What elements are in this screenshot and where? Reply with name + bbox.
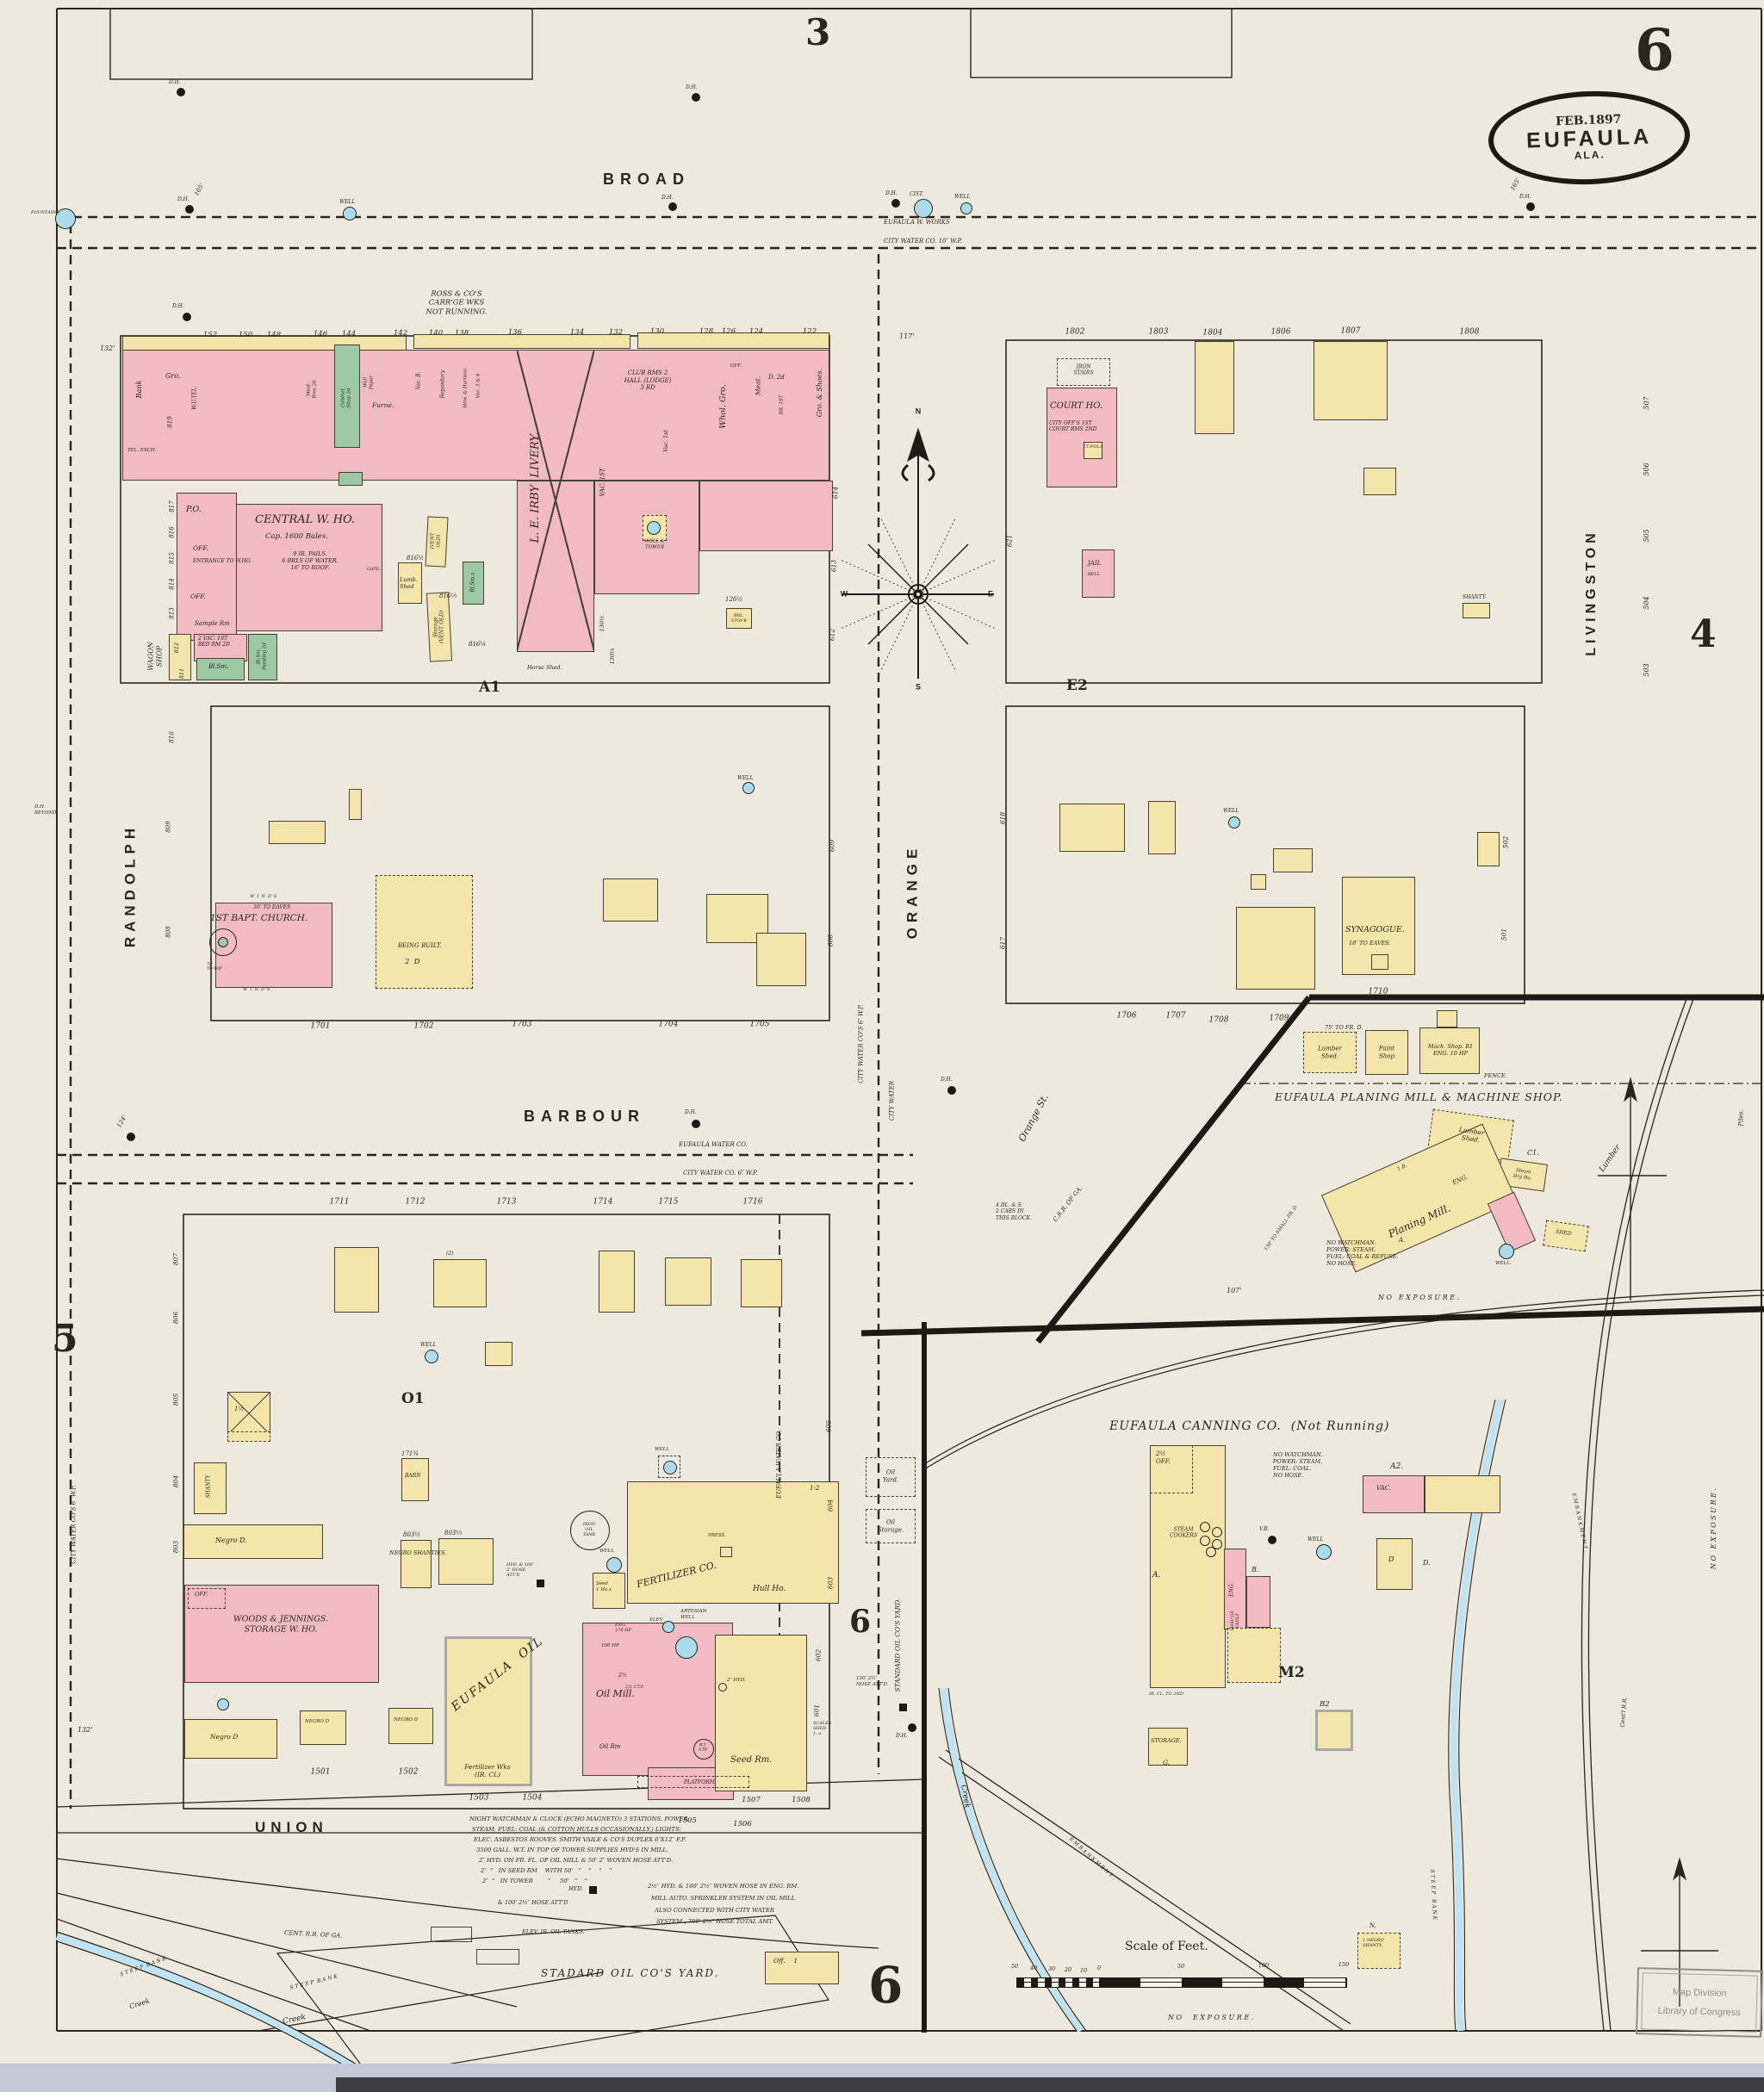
map-label: 617 bbox=[998, 937, 1006, 949]
map-label: Sample Rm bbox=[195, 620, 230, 628]
map-label: Horse Shed. bbox=[527, 665, 562, 672]
map-label: 126½ bbox=[725, 596, 742, 604]
building bbox=[1371, 954, 1388, 970]
map-label: 130½ bbox=[599, 616, 606, 632]
map-label: 2″ " IN SEED RM WITH 50' " " " " bbox=[481, 1867, 612, 1874]
map-label: 812 bbox=[174, 642, 181, 653]
map-label: NIGHT WATCHMAN & CLOCK (ECHO MAGNETO) 3 … bbox=[469, 1816, 690, 1822]
map-label: 134 bbox=[570, 328, 584, 337]
map-label: GATE. bbox=[367, 567, 381, 572]
map-label: Gro. bbox=[165, 372, 180, 381]
map-label: 613 bbox=[829, 560, 837, 572]
map-label: Meat. bbox=[754, 376, 761, 395]
well-icon bbox=[914, 199, 933, 218]
map-label: Off. 1 bbox=[773, 1957, 798, 1965]
map-label: D. 2d bbox=[768, 374, 785, 382]
map-label: 803⅓ bbox=[444, 1530, 462, 1537]
map-label: 819 bbox=[167, 416, 175, 427]
badge-state: ALA. bbox=[1575, 150, 1606, 162]
building bbox=[388, 1708, 433, 1744]
map-label: SYSTEM , 700' 2½″ HOSE TOTAL AMT. bbox=[656, 1918, 773, 1925]
map-label: WOODS & JENNINGS. STORAGE W. HO. bbox=[233, 1614, 328, 1634]
map-label: (2) bbox=[446, 1251, 454, 1257]
map-label: STADARD OIL CO'S YARD. bbox=[541, 1967, 719, 1980]
map-label: 1506 bbox=[733, 1820, 752, 1828]
map-label: 18' TO EAVES. bbox=[1349, 940, 1391, 947]
map-label: ENG. bbox=[1228, 1583, 1234, 1597]
map-label: 78' TO TOP bbox=[207, 963, 222, 972]
map-label: D.H. bbox=[686, 84, 698, 90]
map-label: Vac. B. bbox=[415, 372, 421, 390]
tank-ring-icon bbox=[1206, 1547, 1216, 1557]
well-icon bbox=[343, 207, 357, 220]
map-label: 1710 bbox=[1369, 988, 1388, 997]
map-label: D.H. bbox=[896, 1733, 908, 1739]
map-label: 1711 bbox=[330, 1198, 350, 1207]
well-icon bbox=[663, 1461, 677, 1474]
map-label: D.H. bbox=[685, 1109, 697, 1115]
map-label: 1ST BAPT. CHURCH. bbox=[210, 913, 307, 924]
well-icon bbox=[606, 1557, 622, 1573]
map-label: 816½ bbox=[407, 555, 424, 562]
map-label: 1707 bbox=[1166, 1012, 1186, 1021]
tank-ring-icon bbox=[1200, 1522, 1210, 1532]
hydrant-square-icon bbox=[589, 1886, 597, 1894]
map-label: Negro D. bbox=[215, 1536, 247, 1545]
hydrant-icon bbox=[692, 1120, 700, 1128]
map-label: EUFAULA PLANING MILL & MACHINE SHOP. bbox=[1275, 1090, 1563, 1103]
map-label: Bl.Sm. bbox=[208, 663, 228, 671]
map-label: EUFAULA W. WORKS bbox=[884, 219, 950, 227]
map-label: 603 bbox=[826, 1577, 834, 1589]
map-label: 612 bbox=[828, 629, 835, 641]
map-label: Piles. bbox=[1738, 1109, 1746, 1126]
building bbox=[1227, 1628, 1281, 1683]
map-label: Oil Yard. bbox=[883, 1468, 898, 1483]
scale-bar-fine bbox=[1016, 1977, 1101, 1988]
map-label: 614 bbox=[831, 487, 839, 499]
map-label: SHAV'GS VAULT bbox=[1230, 1611, 1240, 1631]
map-label: 605 bbox=[824, 1420, 832, 1432]
map-label: 2″ HYD. ON FR. FL. OF OIL MILL & 50' 2″ … bbox=[479, 1857, 673, 1864]
map-label: Hdw. & Harness. bbox=[463, 367, 469, 407]
map-label: 144 bbox=[342, 330, 356, 338]
map-label: SYNAGOGUE. bbox=[1345, 925, 1405, 935]
map-label: 811 bbox=[179, 668, 186, 679]
well-icon bbox=[425, 1350, 438, 1363]
map-label: Cap. 1600 Bales. bbox=[265, 532, 328, 541]
map-label: & 100' 2½″ HOSE ATT'D bbox=[498, 1900, 568, 1907]
map-label: N. bbox=[1370, 1922, 1376, 1930]
map-label: B2 bbox=[1320, 1700, 1330, 1709]
tank-ring-icon bbox=[1212, 1527, 1222, 1537]
map-label: 50 bbox=[1011, 1964, 1018, 1971]
map-label: 609 bbox=[828, 840, 835, 852]
building bbox=[431, 1927, 472, 1942]
map-label: W I N D 'S bbox=[243, 987, 270, 992]
building bbox=[1246, 1576, 1270, 1628]
map-label: 1803 bbox=[1149, 328, 1169, 338]
building bbox=[1363, 1475, 1425, 1513]
map-label: 506 bbox=[1643, 462, 1651, 475]
map-label: D.H. bbox=[172, 303, 184, 309]
map-label: STEAM. FUEL: COAL (& COTTON HULLS OCCASI… bbox=[472, 1826, 681, 1833]
building bbox=[485, 1342, 512, 1366]
map-label: 0 bbox=[1097, 1965, 1101, 1972]
map-label: D. bbox=[1423, 1559, 1431, 1567]
building bbox=[376, 875, 473, 989]
map-label: 152 bbox=[203, 331, 217, 339]
building bbox=[1148, 801, 1176, 854]
map-label: 1713 bbox=[497, 1198, 517, 1207]
map-label: L. E. IRBY LIVERY, bbox=[529, 432, 543, 543]
map-label: NEGRO D bbox=[305, 1719, 329, 1725]
scan-edge-shadow bbox=[336, 2077, 1764, 2092]
tank-ring-icon bbox=[570, 1511, 610, 1550]
map-label: V.B. bbox=[1259, 1526, 1270, 1532]
map-label: BEING BUILT. bbox=[398, 942, 442, 950]
map-label: 815 bbox=[169, 552, 177, 563]
map-label: Wall Paper bbox=[363, 376, 374, 389]
map-label: ELEV. bbox=[649, 1617, 663, 1623]
map-label: 504 bbox=[1643, 596, 1651, 609]
building bbox=[433, 1259, 487, 1307]
map-label: Meat. Rms 2d bbox=[306, 381, 317, 399]
building bbox=[720, 1547, 732, 1557]
map-label: NO WATCHMAN. POWER: STEAM. FUEL: COAL & … bbox=[1326, 1240, 1398, 1268]
map-label: SHANTY bbox=[205, 1475, 211, 1499]
building bbox=[756, 933, 806, 986]
tank-ring-icon bbox=[209, 928, 237, 956]
map-label: 117' bbox=[899, 332, 914, 341]
map-label: IR. CL. TO 2ND bbox=[1149, 1692, 1183, 1697]
map-label: CITY WATER CO. 6″ W.P. bbox=[683, 1170, 758, 1177]
map-label: 1708 bbox=[1209, 1016, 1229, 1026]
map-label: 809 bbox=[165, 821, 173, 832]
building bbox=[401, 1458, 429, 1501]
map-label: ENTRANCE TO W.HO. bbox=[193, 558, 252, 564]
map-label: N bbox=[916, 407, 922, 417]
map-label: 1 NEGRO SHANTY. bbox=[1363, 1938, 1384, 1948]
map-label: JAIL bbox=[1088, 560, 1101, 568]
map-label: CUPOLA bbox=[1084, 444, 1102, 450]
map-label: 816⅓ bbox=[439, 593, 457, 600]
map-label: D.H. bbox=[661, 195, 674, 201]
map-label: LIVINGSTON bbox=[1583, 529, 1600, 656]
map-label: ELEV. IR. OIL TANKS. bbox=[522, 1929, 585, 1936]
map-label: 132 bbox=[609, 328, 623, 337]
well-icon bbox=[675, 1636, 698, 1659]
scale-bar-coarse bbox=[1099, 1977, 1347, 1988]
map-label: 502 bbox=[1501, 836, 1509, 848]
map-label: UNION bbox=[255, 1819, 328, 1837]
building bbox=[1251, 874, 1266, 890]
map-label: EUFAULA WATER CO. bbox=[679, 1141, 748, 1149]
map-label: 814 bbox=[169, 578, 177, 589]
map-label: 1806 bbox=[1271, 328, 1291, 338]
building bbox=[1463, 603, 1490, 618]
map-label: 146 bbox=[314, 330, 327, 338]
map-label: Oil Storage. bbox=[878, 1518, 904, 1533]
map-label: 1504 bbox=[523, 1794, 543, 1803]
map-label: CITY OFF'S 1ST COURT RMS 2ND bbox=[1049, 420, 1096, 433]
map-label: BELL bbox=[1088, 572, 1100, 577]
map-label: 604 bbox=[826, 1499, 834, 1512]
map-label: 132' bbox=[100, 345, 115, 353]
map-label: Cabinet Shop 2d bbox=[340, 388, 351, 408]
map-label: D.H. bbox=[1519, 194, 1531, 200]
map-label: S bbox=[916, 683, 921, 692]
building bbox=[741, 1259, 782, 1307]
map-label: Seed Rm. bbox=[730, 1755, 772, 1766]
well-icon bbox=[960, 202, 972, 214]
map-label: Lumb. Shed bbox=[400, 577, 418, 591]
building bbox=[599, 1251, 635, 1313]
map-label: 503 bbox=[1643, 663, 1651, 676]
map-label: B. bbox=[1252, 1566, 1258, 1574]
map-label: 138 bbox=[455, 329, 469, 338]
map-label: 4 DL. & S. 2 CABS IN THIS BLOCK. bbox=[996, 1202, 1032, 1221]
map-label: W I N D 'S bbox=[250, 894, 276, 899]
map-label: 20 bbox=[1065, 1967, 1071, 1974]
map-label: 810 bbox=[169, 731, 177, 742]
map-label: 142 bbox=[394, 329, 407, 338]
map-label: ORANGE bbox=[904, 844, 922, 940]
map-label: 1½ bbox=[234, 1406, 244, 1413]
map-label: 1501 bbox=[311, 1768, 331, 1778]
map-label: 601 bbox=[812, 1704, 820, 1716]
map-label: 5 bbox=[52, 1316, 78, 1363]
map-label: 150 bbox=[239, 331, 252, 339]
map-label: BR. 1ST bbox=[780, 395, 786, 415]
building bbox=[1059, 804, 1125, 852]
badge-city: EUFAULA bbox=[1526, 125, 1653, 152]
building bbox=[334, 1247, 379, 1313]
hydrant-icon bbox=[1268, 1536, 1276, 1544]
map-label: 1703 bbox=[512, 1021, 532, 1030]
map-label: 507 bbox=[1643, 396, 1651, 409]
map-label: CITY WATER CO'S 6″ W.P. bbox=[858, 1004, 866, 1083]
map-label: OFF. bbox=[195, 1592, 208, 1598]
map-label: FOUNTAIN bbox=[31, 210, 56, 215]
map-label: 602 bbox=[814, 1649, 822, 1661]
map-label: 1716 bbox=[743, 1198, 763, 1207]
map-label: CLUB RMS 2 HALL (LODGE) 3 RD bbox=[624, 369, 672, 392]
map-label: 803½ bbox=[403, 1531, 420, 1539]
well-icon bbox=[55, 208, 76, 229]
map-label: MILL AUTO. SPRINKLER SYSTEM IN OIL MILL bbox=[651, 1895, 795, 1902]
map-label: OFF. bbox=[730, 363, 742, 369]
map-label: D bbox=[1388, 1555, 1394, 1564]
map-label: N O E X P O S U R E . bbox=[1378, 1294, 1459, 1302]
map-label: 75' TO FR. D. bbox=[1325, 1025, 1363, 1032]
map-label: 2½ OFF. bbox=[1156, 1450, 1171, 1465]
well-icon bbox=[1316, 1544, 1332, 1560]
building bbox=[183, 1524, 323, 1559]
map-label: G. bbox=[1163, 1759, 1170, 1766]
map-label: 2 VAC. 1ST BED RM 2D bbox=[198, 636, 230, 649]
map-label: C1. bbox=[1527, 1149, 1539, 1158]
map-label: RANDOLPH bbox=[122, 823, 140, 947]
building bbox=[227, 1392, 270, 1435]
map-label: 806 bbox=[171, 1312, 179, 1324]
map-label: A. bbox=[1152, 1571, 1160, 1580]
map-label: D.H. BEYOND bbox=[34, 804, 56, 816]
map-label: 621 bbox=[1005, 535, 1013, 547]
hydrant-icon bbox=[127, 1133, 135, 1141]
map-label: 130 bbox=[650, 327, 664, 336]
map-label: D.H. bbox=[885, 190, 898, 196]
map-label: 30 bbox=[1048, 1966, 1055, 1973]
building bbox=[1437, 1010, 1457, 1027]
map-label: 6 bbox=[1635, 16, 1674, 85]
map-label: 128 bbox=[699, 327, 713, 336]
sanborn-map-sheet: 634566BROADBARBOURUNIONRANDOLPHORANGELIV… bbox=[0, 0, 1764, 2092]
map-label: TEL. EXCH. bbox=[127, 448, 156, 454]
well-icon bbox=[1228, 816, 1240, 829]
map-label: ROSS & CO'S CARR'GE WKS NOT RUNNING. bbox=[425, 289, 487, 316]
building bbox=[1425, 1475, 1500, 1513]
map-label: WELL. bbox=[1495, 1261, 1512, 1267]
map-label: 50 bbox=[1177, 1964, 1184, 1971]
map-label: 816 bbox=[169, 526, 177, 537]
map-label: SHANTY. bbox=[1463, 594, 1487, 600]
map-linework bbox=[0, 0, 1764, 2092]
map-label: STANDARD OIL CO'S YARD. bbox=[893, 1598, 901, 1692]
map-label: E2 bbox=[1066, 677, 1088, 695]
map-label: WELL bbox=[339, 199, 356, 205]
tank-ring-icon bbox=[1200, 1536, 1210, 1546]
map-label: 608 bbox=[826, 934, 834, 947]
map-label: 1-2 bbox=[810, 1485, 819, 1493]
map-label: 816¼ bbox=[469, 641, 486, 649]
building bbox=[269, 821, 326, 844]
scale-title: Scale of Feet. bbox=[1125, 1940, 1208, 1954]
map-label: 2½ bbox=[618, 1673, 627, 1679]
map-label: D.H. bbox=[169, 79, 181, 85]
map-label: BARN bbox=[405, 1473, 421, 1479]
hydrant-icon bbox=[947, 1086, 956, 1095]
map-label: Paint Shop bbox=[1379, 1045, 1394, 1059]
map-label: 40 bbox=[1030, 1965, 1037, 1972]
map-label: Steam Dry Ho. bbox=[1512, 1168, 1532, 1182]
map-label: 1704 bbox=[659, 1021, 679, 1030]
building bbox=[401, 1540, 432, 1588]
building bbox=[665, 1257, 711, 1306]
map-label: BROAD bbox=[603, 171, 690, 189]
map-label: 150' 2½″ HOSE ATT'D bbox=[856, 1676, 887, 1687]
map-label: NEGRO D bbox=[394, 1717, 418, 1723]
map-label: 2½″ HYD. & 100' 2½″ WOVEN HOSE IN ENG. R… bbox=[648, 1883, 799, 1890]
map-label: 1712 bbox=[406, 1198, 425, 1207]
map-label: NO WATCHMAN. POWER: STEAM. FUEL: COAL. N… bbox=[1273, 1452, 1322, 1480]
map-label: 100 HP bbox=[601, 1643, 619, 1649]
map-label: 1701 bbox=[311, 1022, 331, 1032]
map-label: 10 bbox=[1080, 1968, 1087, 1975]
tower-dot bbox=[218, 937, 228, 947]
map-label: 140 bbox=[429, 329, 443, 338]
building bbox=[1363, 468, 1396, 495]
map-label: A2. bbox=[1390, 1462, 1403, 1472]
map-label: 107' bbox=[1227, 1287, 1241, 1295]
map-label: OFF. bbox=[193, 544, 208, 552]
map-label: WELL bbox=[420, 1342, 437, 1348]
building bbox=[300, 1710, 346, 1745]
map-label: A1 bbox=[479, 679, 500, 697]
well-icon bbox=[1499, 1244, 1514, 1259]
well-icon bbox=[662, 1621, 674, 1633]
map-label: WELL bbox=[599, 1549, 614, 1555]
map-label: 805 bbox=[171, 1394, 179, 1406]
map-label: Mach. Shop. B1 ENG. 10 HP bbox=[1428, 1044, 1473, 1058]
map-label: 1705 bbox=[750, 1021, 770, 1030]
map-label: Bl.Sm. Painting 2d bbox=[256, 642, 267, 670]
map-label: ENG. 176 HP bbox=[615, 1623, 631, 1633]
well-icon bbox=[647, 521, 661, 535]
map-label: WELL bbox=[655, 1447, 669, 1453]
building bbox=[715, 1635, 807, 1791]
map-label: 1804 bbox=[1203, 329, 1223, 338]
map-label: 150 bbox=[1339, 1962, 1349, 1969]
map-label: 2 D bbox=[405, 958, 420, 966]
building bbox=[349, 789, 362, 820]
building bbox=[1315, 1710, 1353, 1751]
map-label: 1503 bbox=[469, 1794, 489, 1803]
map-label: Gro. & Shoes. bbox=[816, 369, 824, 417]
map-label: NEGRO SHANTIES. bbox=[389, 1550, 446, 1557]
map-label: PRESS. bbox=[708, 1533, 726, 1539]
map-label: 2″ HYD. bbox=[727, 1678, 746, 1684]
building bbox=[699, 481, 833, 551]
hydrant-icon bbox=[668, 202, 677, 211]
map-label: E bbox=[988, 590, 993, 599]
map-label: Hull Ho. bbox=[753, 1585, 786, 1594]
map-label: WELL & TOWER bbox=[644, 538, 665, 549]
hydrant-icon bbox=[891, 199, 900, 208]
library-of-congress-stamp: Map Division Library of Congress bbox=[1636, 1967, 1763, 2038]
map-label: 124 bbox=[749, 327, 763, 336]
map-label: 1709 bbox=[1270, 1015, 1289, 1024]
map-label: W bbox=[841, 590, 848, 599]
map-label: 817 bbox=[169, 500, 177, 512]
map-label: EUFAULA CANNING CO. (Not Running) bbox=[1109, 1419, 1389, 1434]
map-label: 136 bbox=[508, 328, 522, 337]
map-label: 9 IR. PAILS. 6 BRLS OF WATER. 16' TO ROO… bbox=[282, 551, 338, 572]
map-label: D.H. bbox=[941, 1077, 953, 1083]
map-label: 505 bbox=[1643, 529, 1651, 542]
map-label: HYD. & 100' 2″ HOSE ATT'D bbox=[506, 1562, 534, 1578]
map-label: 171¾ bbox=[401, 1450, 419, 1458]
hydrant-icon bbox=[185, 205, 194, 214]
building bbox=[339, 472, 363, 486]
building bbox=[1376, 1538, 1413, 1590]
map-label: OFF. bbox=[190, 593, 206, 600]
map-label: 122 bbox=[803, 327, 817, 336]
map-label: 30' TO EAVES bbox=[253, 904, 290, 910]
map-label: D.H. bbox=[177, 196, 189, 202]
tank-ring-icon bbox=[693, 1739, 714, 1760]
map-label: A. bbox=[1399, 1237, 1405, 1245]
map-label: N O E X P O S U R E . bbox=[1710, 1488, 1718, 1569]
map-label: (VENT OLD) bbox=[430, 533, 441, 549]
map-label: Bl.Sm.x bbox=[469, 572, 475, 592]
map-label: 1802 bbox=[1065, 328, 1085, 338]
map-label: ALSO CONNECTED WITH CITY WATER bbox=[655, 1907, 774, 1914]
map-label: SCALES SHED 1. a bbox=[813, 1721, 831, 1736]
map-label: 130⅓ bbox=[610, 649, 617, 665]
map-label: P.O. bbox=[186, 505, 202, 515]
map-label: WELL bbox=[1307, 1536, 1324, 1543]
